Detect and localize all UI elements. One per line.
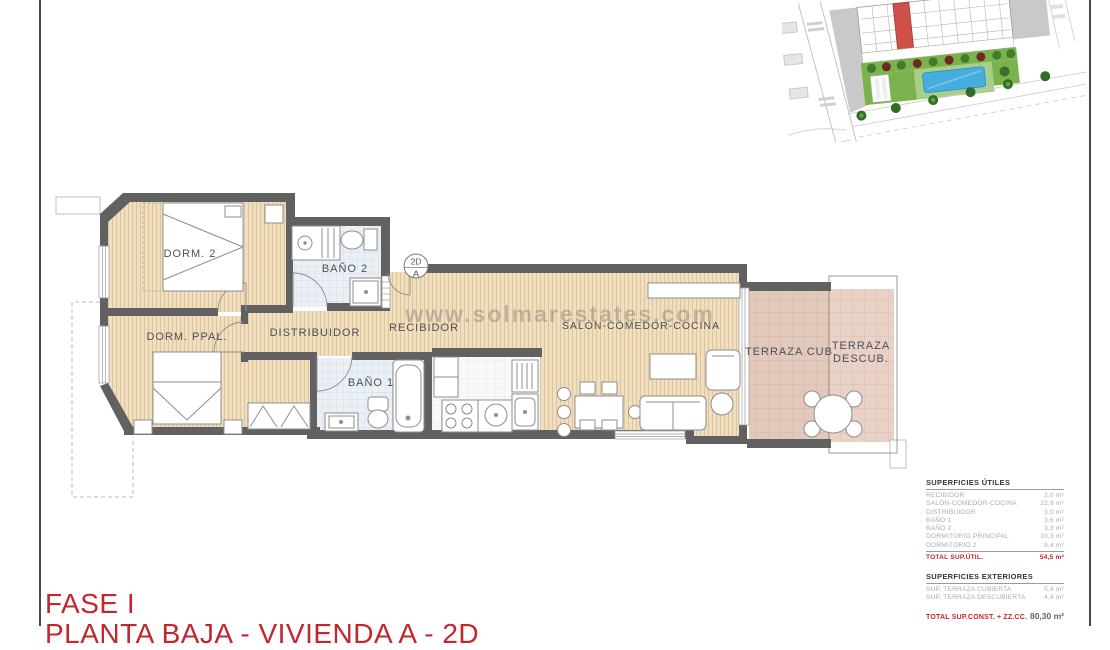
unit-badge-top: 2D — [411, 257, 422, 267]
toilet-bano1 — [368, 397, 388, 411]
table-row: DISTRIBUIDOR3,0 m² — [926, 509, 1064, 517]
table-row: DORMITORIO PRINCIPAL10,3 m² — [926, 533, 1064, 541]
plan-title: PLANTA BAJA - VIVIENDA A - 2D — [45, 618, 479, 650]
terrace-pillar — [890, 440, 906, 468]
row-value: 22,9 m² — [1040, 500, 1064, 508]
row-label: DORMITORIO 2 — [926, 542, 977, 550]
areas-heading-exteriores: SUPERFICIES EXTERIORES — [926, 572, 1064, 584]
room-label-bano2: BAÑO 2 — [322, 262, 368, 275]
room-label-terraza-cub: TERRAZA CUB. — [745, 346, 837, 358]
row-label: SUP. TERRAZA CUBIERTA — [926, 586, 1011, 594]
row-value: 3,6 m² — [1044, 517, 1064, 525]
table-row: BAÑO 13,6 m² — [926, 517, 1064, 525]
table-row: SALÓN-COMEDOR-COCINA22,9 m² — [926, 500, 1064, 508]
table-row: SUP. TERRAZA DESCUBIERTA4,4 m² — [926, 594, 1064, 602]
terrace-table — [814, 395, 852, 433]
pouf — [711, 393, 733, 415]
row-value: 4,4 m² — [1044, 594, 1064, 602]
toilet-bano2 — [341, 231, 363, 249]
room-label-terraza-descub-2: DESCUB. — [833, 353, 889, 365]
row-value: 3,3 m² — [1044, 525, 1064, 533]
total-value: 54,5 m² — [1040, 554, 1064, 562]
row-label: DISTRIBUIDOR — [926, 509, 976, 517]
total-label: TOTAL SUP.ÚTIL. — [926, 554, 983, 562]
exterior-ledge — [56, 197, 100, 214]
areas-heading-utiles: SUPERFICIES ÚTILES — [926, 478, 1064, 490]
total-const-label: TOTAL SUP.CONST. + ZZ.CC. — [926, 614, 1027, 621]
floorplan-page: { "page": { "title_line1": "FASE I", "ti… — [0, 0, 1110, 626]
sideboard — [648, 283, 740, 298]
row-value: 9,4 m² — [1044, 542, 1064, 550]
unit-badge-bottom: A — [413, 269, 420, 280]
phase-title: FASE I — [45, 588, 135, 620]
table-row: SUP. TERRAZA CUBIERTA5,4 m² — [926, 586, 1064, 594]
room-label-bano1: BAÑO 1 — [348, 376, 394, 389]
row-value: 10,3 m² — [1040, 533, 1064, 541]
bed-dorm-ppal — [153, 352, 221, 424]
coffee-table — [650, 354, 696, 379]
row-label: SALÓN-COMEDOR-COCINA — [926, 500, 1017, 508]
total-const-value: 80,30 m² — [1030, 611, 1064, 621]
room-label-terraza-descub-1: TERRAZA — [832, 340, 890, 352]
row-label: SUP. TERRAZA DESCUBIERTA — [926, 594, 1026, 602]
table-row: BAÑO 23,3 m² — [926, 525, 1064, 533]
bathtub-bano1 — [393, 360, 424, 432]
row-value: 3,0 m² — [1044, 509, 1064, 517]
row-label: BAÑO 2 — [926, 525, 951, 533]
row-label: DORMITORIO PRINCIPAL — [926, 533, 1009, 541]
row-label: BAÑO 1 — [926, 517, 951, 525]
row-value: 2,0 m² — [1044, 492, 1064, 500]
hob — [442, 400, 478, 432]
room-label-dorm-ppal: DORM. PPAL. — [146, 331, 227, 343]
room-label-distribuidor: DISTRIBUIDOR — [270, 327, 361, 339]
areas-table: SUPERFICIES ÚTILES RECIBIDOR2,0 m² SALÓN… — [926, 478, 1064, 621]
fridge — [512, 360, 538, 392]
watermark: www.solmarestates.com — [404, 301, 715, 327]
total-util-row: TOTAL SUP.ÚTIL.54,5 m² — [926, 551, 1064, 562]
table-row: DORMITORIO 29,4 m² — [926, 542, 1064, 550]
total-const-row: TOTAL SUP.CONST. + ZZ.CC.80,30 m² — [926, 611, 1064, 621]
row-value: 5,4 m² — [1044, 586, 1064, 594]
room-label-dorm2: DORM. 2 — [164, 248, 217, 260]
